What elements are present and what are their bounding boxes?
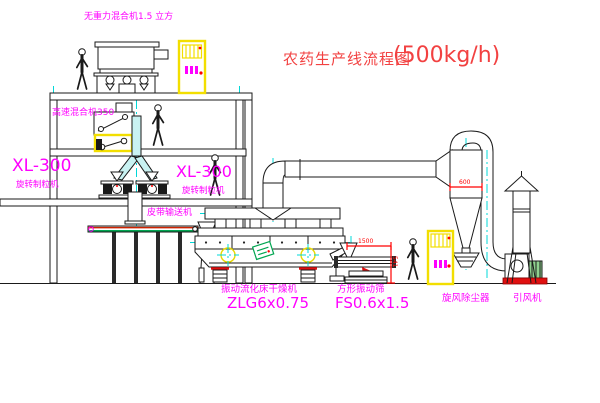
belt-conveyor bbox=[88, 226, 198, 283]
fan-label: 引风机 bbox=[513, 294, 542, 304]
control-cabinet-2 bbox=[428, 231, 453, 284]
flowchart-page: 无重力混合机1.5 立方 农药生产线流程图 (500kg/h) 高速混合机350… bbox=[0, 0, 600, 403]
dryer-model-label: ZLG6x0.75 bbox=[227, 296, 309, 311]
gravity-free-mixer bbox=[94, 42, 168, 93]
cyclone-diameter-dimension: 600 bbox=[459, 180, 470, 186]
belt-conveyor-label: 皮带输送机 bbox=[147, 209, 192, 218]
exhaust-duct bbox=[255, 150, 452, 220]
page-title: 农药生产线流程图 bbox=[283, 52, 411, 67]
granulator-right-model-label: XL-300 bbox=[176, 164, 232, 180]
person-mid-floor bbox=[153, 105, 164, 145]
fluidized-bed-dryer bbox=[195, 208, 345, 282]
screen-height-dimension: 541 bbox=[391, 256, 397, 267]
person-ground bbox=[408, 239, 419, 279]
granulator-right-name-label: 旋转制粒机 bbox=[182, 187, 225, 196]
granulator-left-model-label: XL-300 bbox=[12, 158, 71, 175]
control-cabinet-1 bbox=[179, 41, 205, 93]
cyclone-label: 旋风除尘器 bbox=[442, 294, 490, 304]
granulator-left-name-label: 旋转制粒机 bbox=[16, 181, 59, 190]
screen-length-dimension: 1500 bbox=[358, 239, 373, 245]
gravity-mixer-label: 无重力混合机1.5 立方 bbox=[84, 13, 173, 22]
screen-model-label: FS0.6x1.5 bbox=[335, 296, 409, 311]
discharge-chute bbox=[125, 192, 145, 224]
dryer-spring-mounts bbox=[199, 267, 344, 282]
page-title-capacity: (500kg/h) bbox=[393, 45, 500, 67]
high-speed-mixer-label: 高速混合机350 bbox=[52, 109, 114, 118]
person-top-floor bbox=[77, 49, 88, 89]
